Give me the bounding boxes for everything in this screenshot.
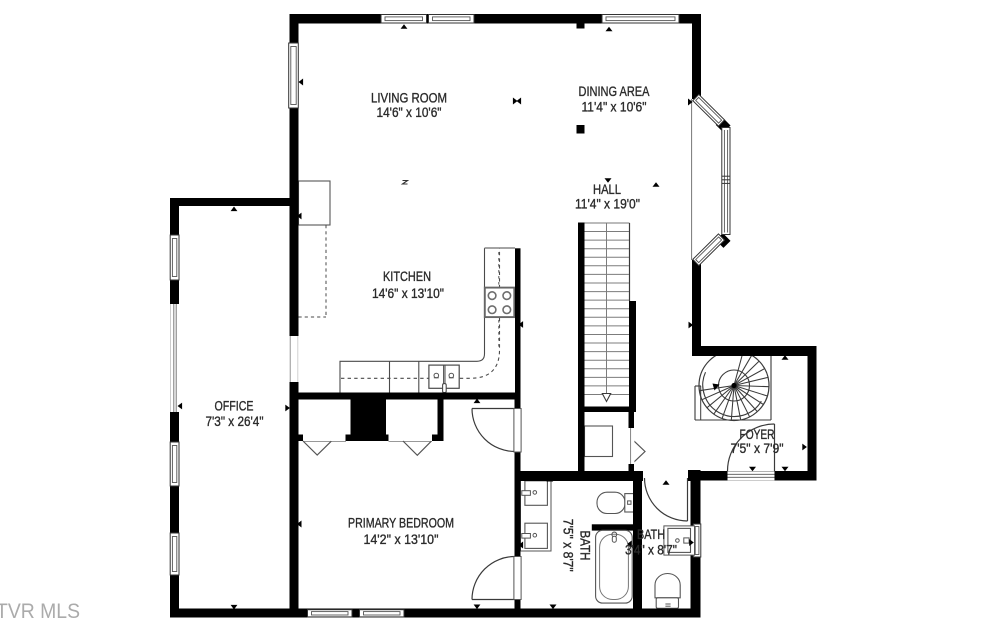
- svg-text:11'4" x 10'6": 11'4" x 10'6": [582, 100, 647, 115]
- svg-text:7'3" x 26'4": 7'3" x 26'4": [206, 414, 264, 429]
- svg-text:14'2" x 13'10": 14'2" x 13'10": [364, 532, 439, 547]
- svg-text:TVR MLS: TVR MLS: [0, 599, 80, 623]
- svg-text:HALL: HALL: [593, 182, 621, 197]
- svg-text:14'6" x 13'10": 14'6" x 13'10": [372, 286, 444, 301]
- svg-text:BATH: BATH: [578, 531, 593, 561]
- svg-text:11'4" x 19'0": 11'4" x 19'0": [575, 197, 640, 212]
- svg-text:LIVING ROOM: LIVING ROOM: [371, 91, 447, 106]
- svg-text:KITCHEN: KITCHEN: [383, 269, 431, 284]
- svg-text:FOYER: FOYER: [740, 427, 775, 442]
- svg-text:BATH: BATH: [637, 527, 665, 542]
- svg-text:7'5" x 7'9": 7'5" x 7'9": [731, 441, 784, 456]
- svg-text:OFFICE: OFFICE: [215, 399, 254, 414]
- svg-text:14'6" x 10'6": 14'6" x 10'6": [377, 105, 442, 120]
- svg-text:DINING AREA: DINING AREA: [579, 84, 650, 99]
- svg-text:PRIMARY BEDROOM: PRIMARY BEDROOM: [348, 516, 454, 531]
- svg-text:3'4" x 8'7": 3'4" x 8'7": [625, 543, 677, 558]
- svg-text:7'5" x 8'7": 7'5" x 8'7": [561, 519, 576, 572]
